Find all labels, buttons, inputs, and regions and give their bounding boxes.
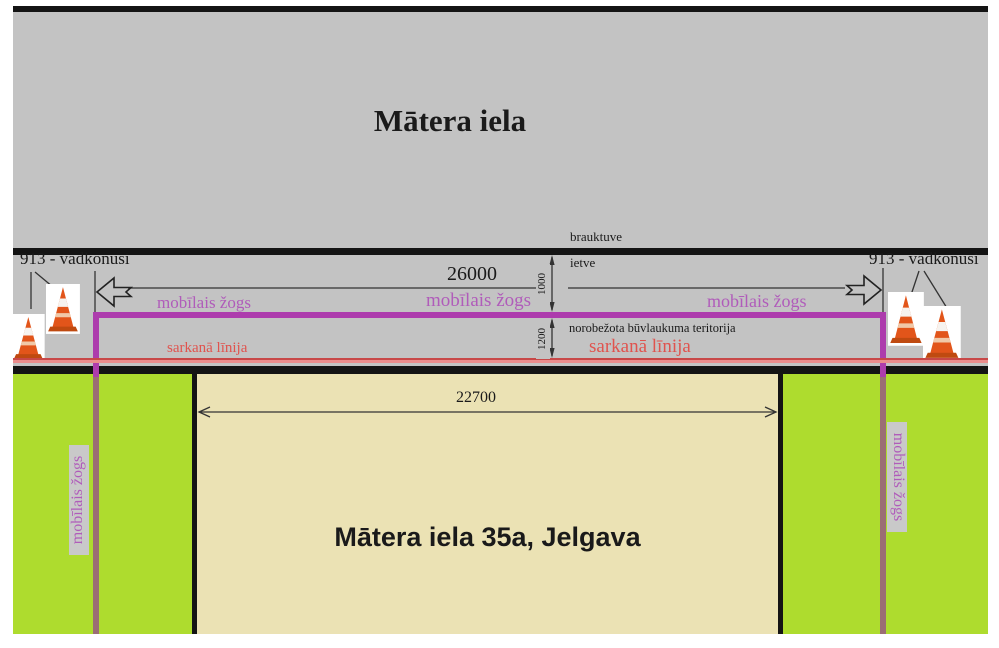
roadway-edge-bar [13,248,988,255]
mobile-fence-label-vertical-left: mobīlais žogs [69,445,89,555]
roadway-label: brauktuve [570,230,622,244]
mobile-fence-label-left: mobīlais žogs [157,294,251,313]
mobile-fence-line-left-upper [93,312,99,377]
mobile-fence-line-right-lower [880,377,886,634]
site-plan-diagram: Mātera iela brauktuve ietve norobežota b… [0,0,999,648]
dim-value-1200: 1200 [536,319,550,359]
restricted-zone-label: norobežota būvlaukuma teritorija [569,322,736,336]
cones-label-right: 913 - vadkonusi [869,250,979,269]
building-area [197,374,778,634]
mobile-fence-label-right: mobīlais žogs [707,292,807,312]
mobile-fence-line-top [93,312,886,318]
mobile-fence-line-left-lower [93,377,99,634]
street-title: Mātera iela [250,104,650,138]
grass-strip-left [13,374,192,634]
sidewalk-label: ietve [570,256,595,270]
red-line-label-left: sarkanā līnija [167,340,247,357]
mobile-fence-line-right-upper [880,312,886,377]
site-boundary-bar [13,366,988,374]
mobile-fence-label-center: mobīlais žogs [426,291,531,312]
cones-label-left: 913 - vadkonusi [20,250,130,269]
red-line [13,358,988,363]
red-line-label-center: sarkanā līnija [589,337,691,358]
dim-value-1000: 1000 [536,264,550,304]
dim-value-26000: 26000 [432,263,512,285]
dim-value-22700: 22700 [436,389,516,407]
building-label: Mātera iela 35a, Jelgava [197,523,778,553]
mobile-fence-label-vertical-right: mobīlais žogs [887,422,907,532]
